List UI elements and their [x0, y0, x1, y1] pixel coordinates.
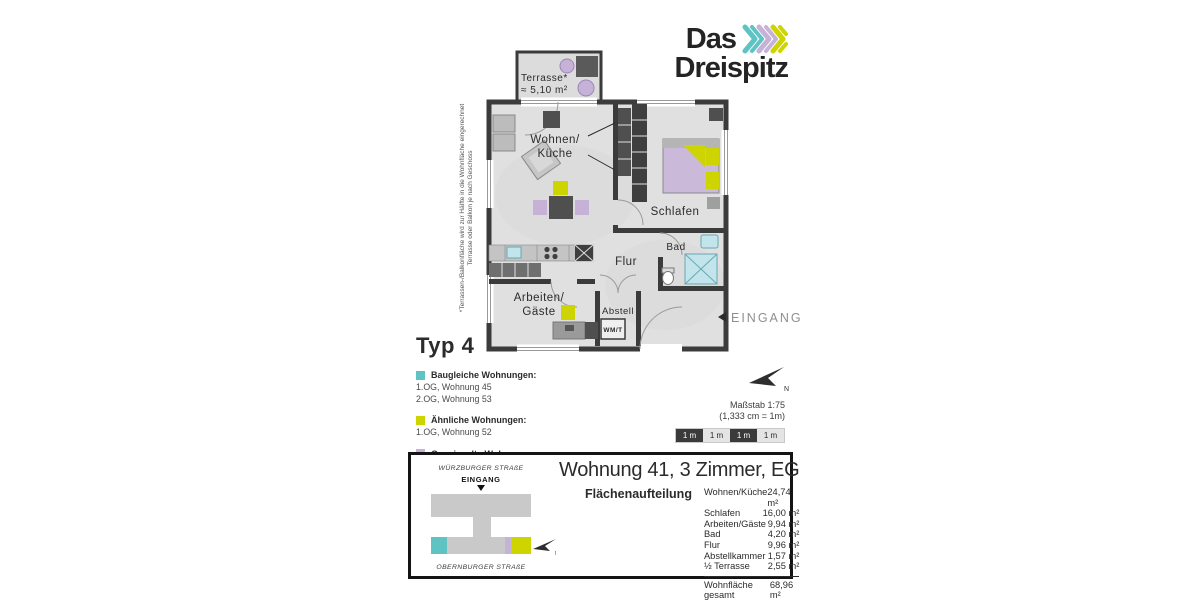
dining-chair — [553, 181, 568, 195]
unit-highlight-lavender — [505, 537, 512, 554]
room-label-schlafen: Schlafen — [651, 206, 700, 218]
entrance-marker: EINGANG — [718, 311, 803, 325]
room-label-abstell: Abstell — [602, 306, 634, 317]
siteplan-entrance-label: EINGANG — [461, 475, 500, 484]
dining-table — [549, 196, 573, 219]
info-right: Wohnung 41, 3 Zimmer, EG Flächenaufteilu… — [559, 455, 805, 576]
sofa — [493, 115, 515, 132]
desk-chair — [561, 305, 575, 320]
unit-info-box: WÜRZBURGER STRAßE EINGANG N OBERNBURGER … — [408, 452, 793, 579]
room-label-arbeiten: Arbeiten/ — [514, 292, 565, 304]
terrace-chair — [578, 80, 594, 96]
terrace-chair — [560, 59, 574, 73]
entrance-pointer-icon — [477, 485, 485, 491]
room-label-bad: Bad — [666, 242, 685, 253]
terrace-table — [576, 56, 598, 77]
table-row: Wohnen/Küche24,74 m² — [704, 487, 799, 508]
shelf — [585, 322, 598, 339]
terrace-area-label: ≈ 5,10 m² — [521, 85, 568, 96]
building-footprint — [431, 494, 531, 554]
scale-segment: 1 m — [757, 429, 784, 442]
bedroom-cabinet — [709, 108, 723, 121]
site-plan: WÜRZBURGER STRAßE EINGANG N OBERNBURGER … — [411, 455, 559, 576]
scale-note: Maßstab 1:75 (1,333 cm = 1m) — [680, 400, 785, 422]
north-arrow-icon: N — [748, 364, 793, 394]
svg-text:N: N — [555, 551, 556, 557]
washer-label: WM/T — [603, 327, 622, 334]
room-label-wohnen: Wohnen/ — [530, 134, 580, 146]
room-label-kueche: Küche — [537, 148, 572, 160]
scale-segment: 1 m — [703, 429, 730, 442]
unit-highlight-yellow — [512, 537, 531, 554]
street-bottom-label: OBERNBURGER STRAßE — [436, 564, 525, 571]
kitchen-sink — [507, 247, 521, 258]
bed-pillow — [706, 172, 719, 189]
entrance-label: EINGANG — [731, 311, 803, 325]
nightstand — [707, 197, 720, 209]
legend-title: Ähnliche Wohnungen: — [431, 415, 526, 425]
table-total-row: Wohnfläche gesamt68,96 m² — [704, 576, 799, 600]
scale-bar: 1 m 1 m 1 m 1 m — [675, 428, 785, 443]
bed-pillow — [706, 148, 719, 165]
north-label: N — [784, 386, 789, 393]
room-label-flur: Flur — [615, 256, 637, 268]
unit-highlight-teal — [431, 537, 447, 554]
legend-item: 1.OG, Wohnung 52 — [416, 427, 586, 439]
type-heading: Typ 4 — [416, 333, 474, 359]
legend-entry-aehnlich: Ähnliche Wohnungen: 1.OG, Wohnung 52 — [416, 415, 586, 439]
legend-entry-baugleich: Baugleiche Wohnungen: 1.OG, Wohnung 45 2… — [416, 370, 586, 405]
room-label-gaeste: Gäste — [522, 306, 555, 318]
terrace-footnote: *Terrassen-/Balkonfläche wird zur Hälfte… — [459, 93, 475, 323]
toilet — [663, 272, 674, 285]
street-top-label: WÜRZBURGER STRAßE — [439, 464, 524, 472]
legend-title: Baugleiche Wohnungen: — [431, 370, 536, 380]
scale-segment: 1 m — [676, 429, 703, 442]
table-row: ½ Terrasse2,55 m² — [704, 561, 799, 572]
legend-item: 2.OG, Wohnung 53 — [416, 394, 586, 406]
unit-title: Wohnung 41, 3 Zimmer, EG — [559, 459, 799, 482]
table-row: Arbeiten/Gäste9,94 m² — [704, 519, 799, 530]
table-row: Schlafen16,00 m² — [704, 508, 799, 519]
sink — [701, 235, 718, 248]
dining-chair — [575, 200, 589, 215]
terrace-label: Terrasse* — [521, 73, 568, 84]
scale-segment: 1 m — [730, 429, 757, 442]
table-row: Flur9,96 m² — [704, 540, 799, 551]
side-table — [543, 111, 560, 128]
table-row: Bad4,20 m² — [704, 529, 799, 540]
legend-item: 1.OG, Wohnung 45 — [416, 382, 586, 394]
legend-color-yellow-icon — [416, 416, 425, 425]
terrace: Terrasse* ≈ 5,10 m² — [517, 52, 601, 102]
floorplan-sheet: Das Dreispitz Terrasse* ≈ 5,10 m² — [0, 0, 1200, 600]
floorplan-drawing: Terrasse* ≈ 5,10 m² — [455, 35, 815, 365]
area-table-heading: Flächenaufteilung — [585, 487, 692, 600]
storage-room: WM/T — [601, 319, 625, 339]
sofa — [493, 134, 515, 151]
table-row: Abstellkammer1,57 m² — [704, 551, 799, 562]
area-table: Wohnen/Küche24,74 m² Schlafen16,00 m² Ar… — [704, 487, 799, 600]
dining-chair — [533, 200, 547, 215]
legend-color-teal-icon — [416, 371, 425, 380]
north-arrow-icon: N — [533, 539, 556, 557]
